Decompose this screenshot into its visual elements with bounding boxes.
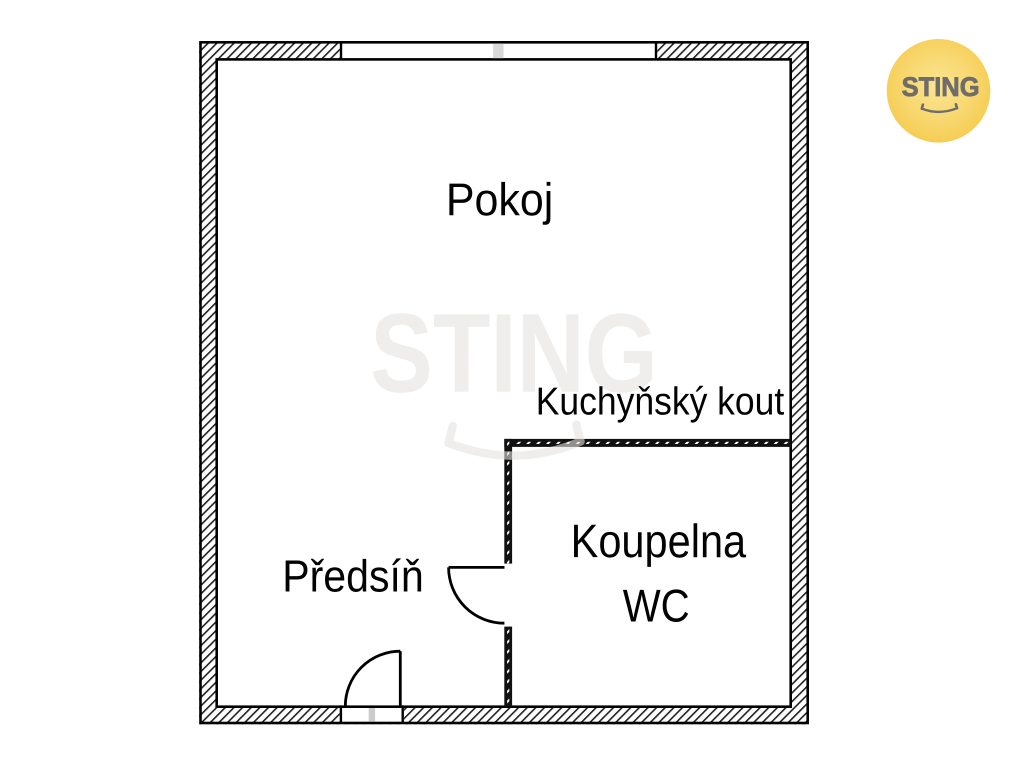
svg-text:Koupelna: Koupelna	[571, 514, 747, 567]
svg-text:Předsíň: Předsíň	[282, 550, 424, 601]
svg-text:Pokoj: Pokoj	[446, 173, 554, 225]
svg-text:STING: STING	[902, 72, 980, 102]
svg-text:Kuchyňský kout: Kuchyňský kout	[536, 380, 785, 423]
svg-text:WC: WC	[623, 579, 690, 631]
